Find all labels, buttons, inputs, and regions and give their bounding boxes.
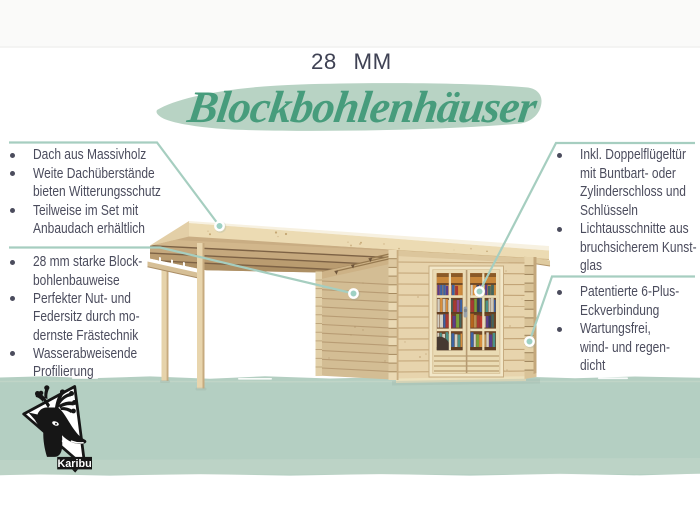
svg-text:Karibu: Karibu	[57, 458, 91, 470]
svg-text:Blockbohlenhäuser: Blockbohlenhäuser	[184, 82, 541, 132]
